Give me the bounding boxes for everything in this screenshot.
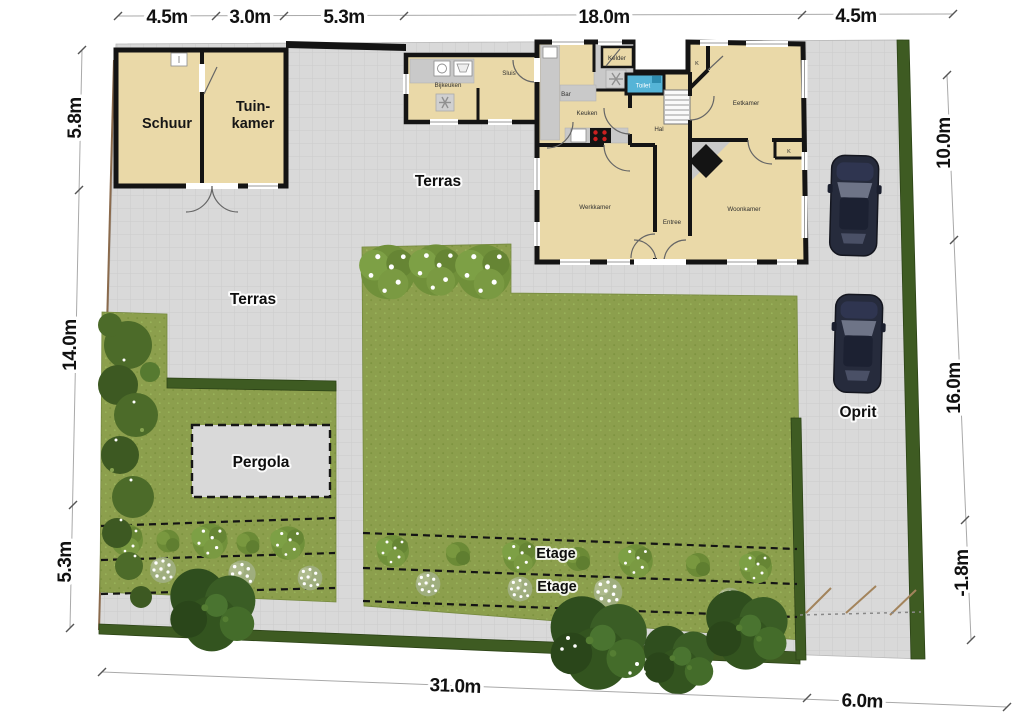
dim-right-2: 16.0m [944,362,965,413]
label-sluis: Sluis [502,70,515,77]
toilet-sink-icon [652,76,661,83]
label-schuur: Schuur [142,116,192,132]
dim-right-3: -1.8m [952,549,973,596]
dim-top-4: 18.0m [578,7,629,28]
label-woonkamer: Woonkamer [727,206,760,213]
label-tuinkamer-line2: kamer [232,116,275,132]
label-kelder: Kelder [608,55,626,62]
label-bijkeuken: Bijkeuken [435,82,462,89]
label-oprit: Oprit [839,404,876,421]
windshield [837,182,872,198]
label-etage-lower: Etage [537,579,577,595]
dim-bottom-2: 6.0m [841,690,883,713]
label-etage-upper: Etage [536,546,576,562]
tree [551,596,647,690]
dim-top-5: 4.5m [835,6,876,27]
site-plan: Schuur Tuin- kamer Terras Terras Pergola… [0,0,1024,724]
kitchen-sink-icon [543,47,557,58]
dim-top-3: 5.3m [323,7,364,28]
stove-icon [590,128,611,143]
tree [170,569,255,652]
car-1 [826,155,883,256]
label-toilet: Toilet [636,83,651,90]
label-kast-2: K [787,149,791,155]
label-terras-upper: Terras [415,173,461,190]
house-notch [636,36,686,70]
label-hal: Hal [654,126,663,133]
dim-top-1: 4.5m [146,7,187,28]
label-kast-1: K [695,61,699,67]
label-eetkamer: Eetkamer [733,100,759,107]
floorplan-canvas: Schuur Tuin- kamer Terras Terras Pergola… [0,0,1024,724]
dim-left-1: 5.8m [65,97,86,138]
label-keuken: Keuken [577,110,599,117]
bushes-top-row [359,244,511,299]
dim-right-1: 10.0m [934,117,955,168]
dim-bottom-1: 31.0m [429,675,481,698]
label-bar: Bar [561,91,571,98]
windshield [841,320,876,336]
dishwasher-icon [571,129,586,142]
label-pergola: Pergola [233,454,290,471]
tree [644,626,714,694]
washer-icon [434,61,450,76]
label-entree: Entree [663,219,682,226]
dim-top-2: 3.0m [229,7,270,28]
label-tuinkamer-line1: Tuin- [236,99,271,115]
car-2 [830,294,887,393]
dim-left-2: 14.0m [60,319,81,370]
label-terras-lower: Terras [230,291,276,308]
label-werkkamer: Werkkamer [579,204,611,211]
dim-left-3: 5.3m [55,541,76,582]
house-main-block [537,42,806,262]
